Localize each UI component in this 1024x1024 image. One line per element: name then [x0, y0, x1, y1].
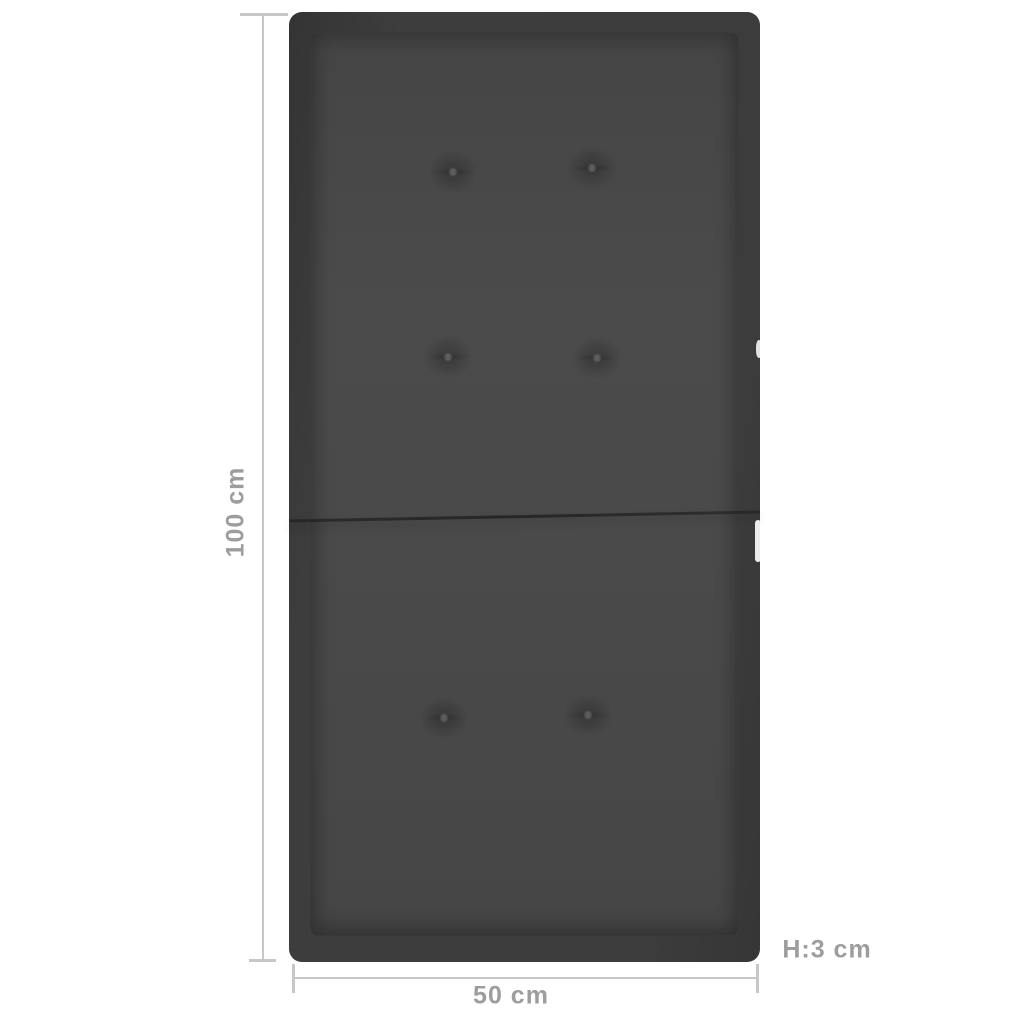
width-dimension-right-cap [756, 964, 759, 993]
height-dimension-line [262, 14, 264, 961]
height-dimension-top-cap [240, 13, 288, 16]
width-dimension-line [293, 977, 758, 979]
height-label: 100 cm [222, 467, 251, 558]
width-label: 50 cm [473, 982, 549, 1011]
tuft-button [553, 685, 623, 745]
cushion-edge-notch [756, 340, 762, 358]
width-dimension-left-cap [292, 964, 295, 993]
cushion-image [289, 12, 760, 962]
tuft-button [562, 328, 632, 388]
height-dimension-bottom-cap [249, 959, 276, 962]
tuft-button [409, 688, 479, 748]
cushion-edge-notch [755, 520, 761, 562]
tuft-button [557, 138, 627, 198]
cushion-inner-panel [310, 32, 739, 936]
tuft-button [413, 327, 483, 387]
tuft-button [418, 142, 488, 202]
product-dimension-image: 100 cm 50 cm H:3 cm [0, 0, 1024, 1024]
thickness-label: H:3 cm [782, 936, 871, 965]
